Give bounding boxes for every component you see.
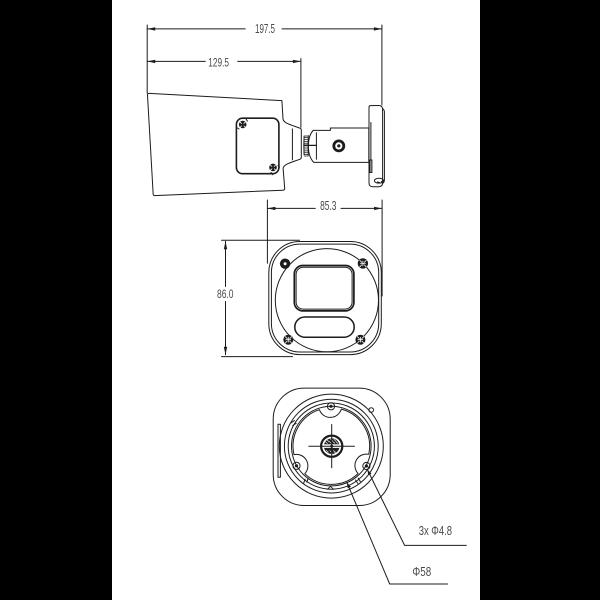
svg-text:85.3: 85.3 [320, 199, 336, 213]
svg-text:Φ58: Φ58 [412, 564, 431, 579]
svg-text:3x Φ4.8: 3x Φ4.8 [419, 523, 452, 538]
svg-text:86.0: 86.0 [217, 287, 234, 301]
svg-text:197.5: 197.5 [255, 22, 275, 36]
svg-text:129.5: 129.5 [208, 55, 229, 69]
